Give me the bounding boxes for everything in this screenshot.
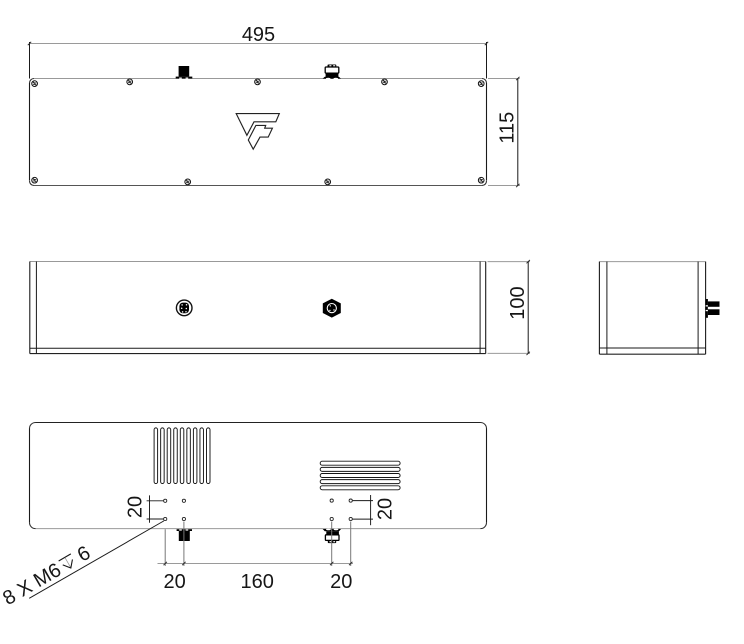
- svg-text:115: 115: [497, 112, 519, 144]
- svg-text:20: 20: [163, 571, 185, 593]
- svg-text:8 X M6: 8 X M6: [0, 559, 65, 610]
- svg-text:20: 20: [375, 498, 397, 520]
- svg-text:20: 20: [125, 496, 147, 518]
- svg-text:160: 160: [241, 571, 274, 593]
- svg-text:495: 495: [242, 24, 275, 46]
- svg-text:100: 100: [507, 286, 529, 319]
- svg-text:20: 20: [330, 571, 352, 593]
